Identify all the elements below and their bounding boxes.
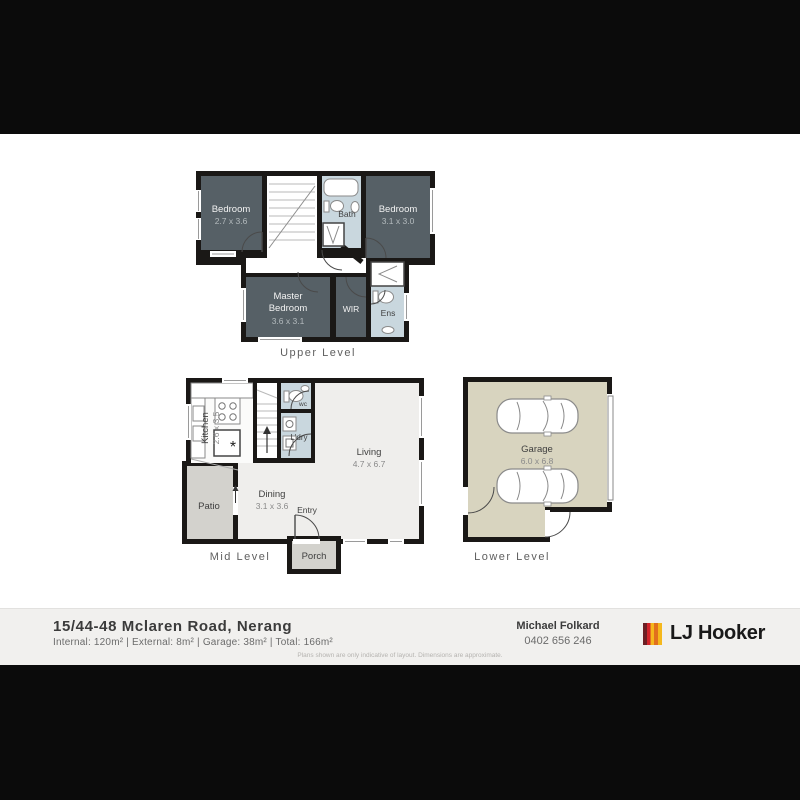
bedroom1-label: Bedroom xyxy=(212,204,251,215)
mid-level-plan: * xyxy=(182,378,424,574)
wir-label: WIR xyxy=(343,304,360,314)
area-details: Internal: 120m² | External: 8m² | Garage… xyxy=(53,637,333,648)
disclaimer-text: Plans shown are only indicative of layou… xyxy=(0,652,800,659)
washer-icon xyxy=(283,417,296,431)
dining-label: Dining xyxy=(259,489,286,500)
upper-level-label: Upper Level xyxy=(280,347,356,359)
kitchen-label: Kitchen xyxy=(200,412,211,444)
wc-label: wc xyxy=(298,401,308,408)
agent-block: Michael Folkard 0402 656 246 xyxy=(488,620,628,647)
dining-dims: 3.1 x 3.6 xyxy=(256,501,289,511)
garage-dims: 6.0 x 6.8 xyxy=(521,456,554,466)
ljhooker-logo-text: LJ Hooker xyxy=(670,622,765,645)
ens-label: Ens xyxy=(381,308,396,318)
bath-label: Bath xyxy=(338,209,356,219)
floor-plans-graphic: Bedroom 2.7 x 3.6 Bedroom 3.1 x 3.0 Bath… xyxy=(0,134,800,608)
footer-bar: 15/44-48 Mclaren Road, Nerang Internal: … xyxy=(0,608,800,665)
shower-icon xyxy=(323,223,344,246)
property-address: 15/44-48 Mclaren Road, Nerang xyxy=(53,618,292,635)
car-icon xyxy=(497,396,578,436)
bottom-black-band xyxy=(0,665,800,800)
lower-level-label: Lower Level xyxy=(474,551,550,563)
garage-door-icon xyxy=(607,394,614,502)
kitchen-dims: 2.6 x 3.5 xyxy=(211,411,221,444)
patio-label: Patio xyxy=(198,501,220,512)
car-icon xyxy=(497,466,578,506)
agent-name: Michael Folkard xyxy=(488,620,628,632)
entry-label: Entry xyxy=(297,505,318,515)
bedroom2-label: Bedroom xyxy=(379,204,418,215)
master-dims: 3.6 x 3.1 xyxy=(272,316,305,326)
master-label-1: Master xyxy=(273,291,302,302)
garage-label: Garage xyxy=(521,444,553,455)
upper-hallway xyxy=(246,258,366,273)
laundry-label: L'dry xyxy=(290,433,307,442)
living-label: Living xyxy=(357,447,382,458)
upper-level-plan: Bedroom 2.7 x 3.6 Bedroom 3.1 x 3.0 Bath… xyxy=(196,171,435,359)
top-black-band xyxy=(0,0,800,134)
ensuite-basin-icon xyxy=(382,327,394,334)
porch-label: Porch xyxy=(302,551,327,562)
floorplan-flyer: Bedroom 2.7 x 3.6 Bedroom 3.1 x 3.0 Bath… xyxy=(0,0,800,800)
bathtub-icon xyxy=(324,179,358,196)
master-label-2: Bedroom xyxy=(269,303,308,314)
upper-stairs xyxy=(267,176,317,264)
living-dims: 4.7 x 6.7 xyxy=(353,459,386,469)
ljhooker-logo: LJ Hooker xyxy=(643,622,765,645)
bedroom1-dims: 2.7 x 3.6 xyxy=(215,216,248,226)
kitchen-symbol: * xyxy=(230,439,236,456)
agent-phone: 0402 656 246 xyxy=(488,635,628,647)
mid-level-label: Mid Level xyxy=(210,551,271,563)
ljhooker-logo-icon xyxy=(643,623,662,645)
lower-level-plan: Garage 6.0 x 6.8 Lower Level xyxy=(463,377,614,563)
bedroom2-dims: 3.1 x 3.0 xyxy=(382,216,415,226)
ensuite-shower-icon xyxy=(371,262,404,286)
